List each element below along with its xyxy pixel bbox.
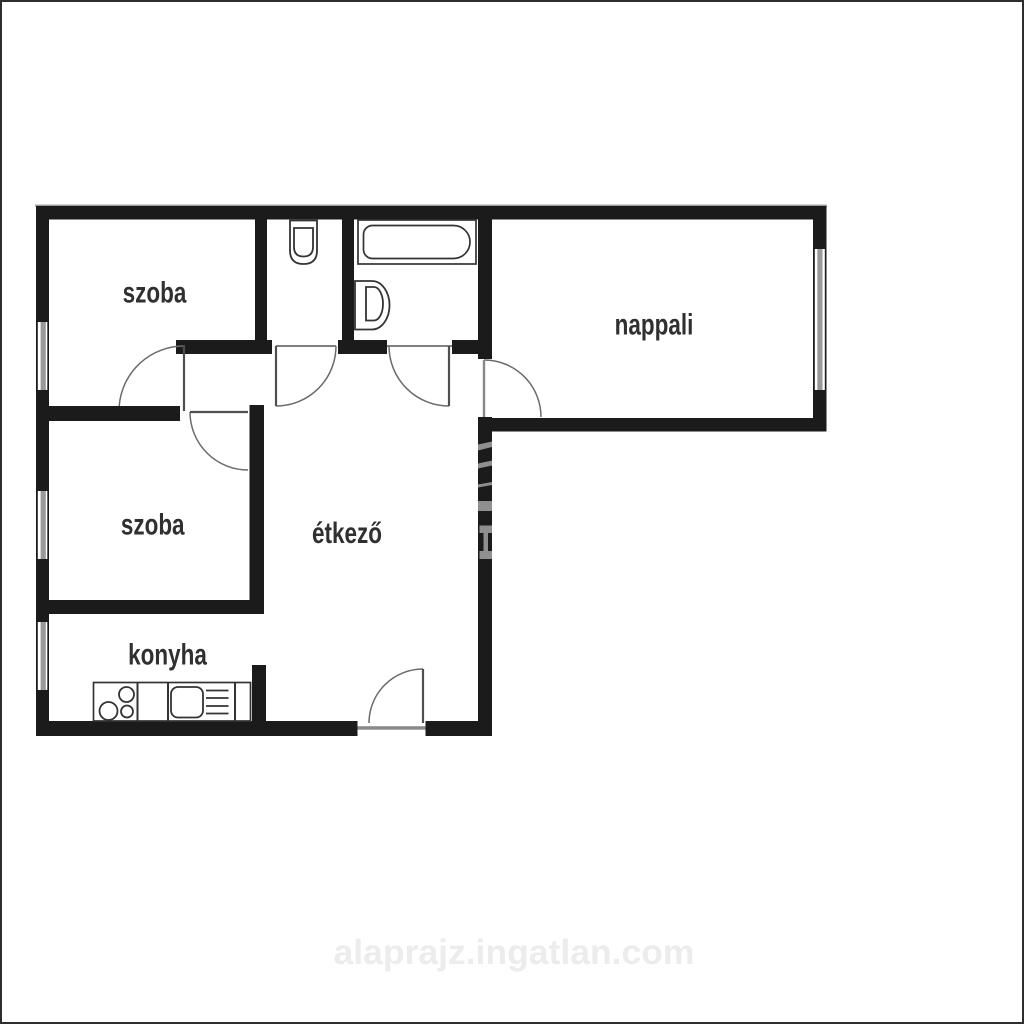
svg-text:szoba: szoba [121,507,185,541]
svg-text:konyha: konyha [128,638,207,672]
svg-text:alaprajz.ingatlan.com: alaprajz.ingatlan.com [333,932,694,972]
svg-text:szoba: szoba [123,275,187,309]
svg-text:étkező: étkező [312,516,382,550]
svg-text:nappali: nappali [615,307,694,341]
